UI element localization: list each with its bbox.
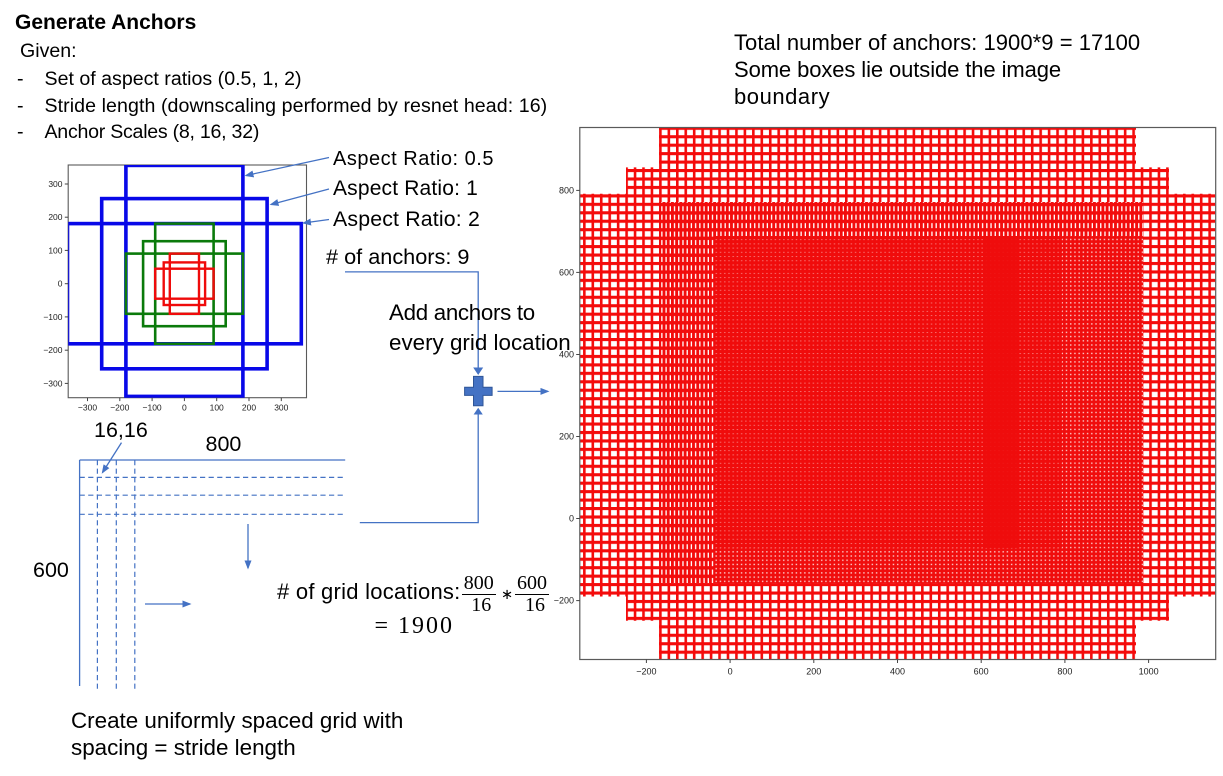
svg-text:100: 100 (48, 245, 62, 255)
svg-text:0: 0 (728, 667, 733, 677)
svg-text:−200: −200 (110, 403, 129, 413)
svg-text:200: 200 (48, 212, 62, 222)
svg-text:−100: −100 (143, 403, 162, 413)
svg-text:800: 800 (559, 185, 574, 195)
svg-text:−300: −300 (78, 403, 97, 413)
svg-text:−200: −200 (636, 667, 656, 677)
svg-text:300: 300 (274, 403, 288, 413)
svg-text:800: 800 (1057, 667, 1072, 677)
svg-text:1000: 1000 (1139, 667, 1159, 677)
svg-text:400: 400 (890, 667, 905, 677)
svg-text:100: 100 (210, 403, 224, 413)
svg-text:−300: −300 (43, 378, 62, 388)
svg-text:−200: −200 (554, 596, 574, 606)
svg-text:200: 200 (242, 403, 256, 413)
svg-text:0: 0 (569, 514, 574, 524)
svg-text:−100: −100 (43, 312, 62, 322)
svg-text:0: 0 (58, 279, 63, 289)
svg-text:300: 300 (48, 179, 62, 189)
svg-text:0: 0 (182, 403, 187, 413)
svg-text:−200: −200 (43, 345, 62, 355)
svg-text:200: 200 (559, 432, 574, 442)
svg-text:200: 200 (806, 667, 821, 677)
svg-text:600: 600 (559, 267, 574, 277)
svg-text:600: 600 (974, 667, 989, 677)
